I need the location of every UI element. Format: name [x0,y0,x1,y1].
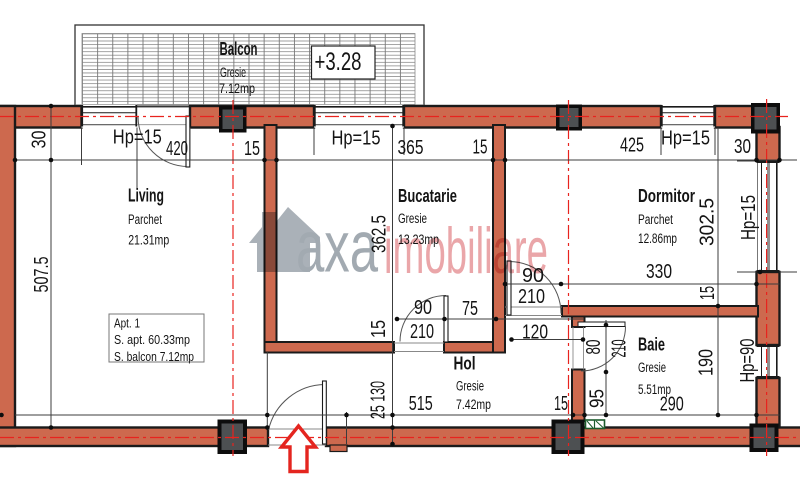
svg-text:21.31mp: 21.31mp [128,233,169,248]
svg-text:330: 330 [646,261,672,283]
svg-text:30: 30 [29,131,51,149]
svg-text:Living: Living [128,186,164,206]
svg-text:15: 15 [697,286,719,300]
svg-text:15: 15 [244,138,260,160]
svg-text:Hp=15: Hp=15 [332,128,381,150]
svg-text:25 130: 25 130 [368,381,390,419]
svg-text:Hp=15: Hp=15 [738,195,760,240]
svg-text:210: 210 [410,321,434,343]
svg-text:Parchet: Parchet [638,212,673,227]
svg-text:190: 190 [696,349,718,376]
svg-text:80: 80 [583,340,605,355]
svg-text:75: 75 [462,298,478,320]
svg-text:90: 90 [414,297,432,319]
svg-text:120: 120 [522,322,548,344]
svg-text:Hp=90: Hp=90 [737,339,759,383]
svg-text:210: 210 [518,286,545,308]
svg-text:Gresie: Gresie [456,379,484,394]
svg-text:210: 210 [609,340,631,358]
svg-text:12.86mp: 12.86mp [638,231,677,246]
svg-text:Dormitor: Dormitor [638,186,695,206]
svg-text:15: 15 [554,393,568,415]
svg-text:S. balcon 7.12mp: S. balcon 7.12mp [114,349,194,364]
svg-text:507.5: 507.5 [31,257,53,293]
svg-text:95: 95 [587,389,609,408]
svg-text:+3.28: +3.28 [315,48,362,76]
svg-text:13.23mp: 13.23mp [398,232,439,247]
svg-text:Baie: Baie [638,335,665,355]
svg-text:Apt. 1: Apt. 1 [114,316,140,331]
svg-text:7.12mp: 7.12mp [219,81,255,96]
svg-text:Gresie: Gresie [220,65,246,80]
svg-text:axa: axa [296,208,379,288]
svg-text:Parchet: Parchet [128,212,162,227]
svg-text:Balcon: Balcon [220,39,258,59]
svg-text:7.42mp: 7.42mp [456,397,491,412]
svg-text:290: 290 [660,394,684,416]
svg-text:Gresie: Gresie [638,360,666,375]
svg-text:15: 15 [368,320,390,338]
svg-text:Bucatarie: Bucatarie [398,186,457,206]
svg-text:362.5: 362.5 [369,215,391,253]
svg-text:365: 365 [398,137,424,159]
svg-text:Hp=15: Hp=15 [661,128,710,150]
svg-text:30: 30 [734,136,751,158]
svg-text:90: 90 [522,265,544,287]
svg-text:515: 515 [409,393,433,415]
svg-text:425: 425 [620,135,644,157]
svg-text:15: 15 [473,137,488,159]
svg-text:Gresie: Gresie [398,211,427,226]
svg-text:Hp=15: Hp=15 [113,127,162,149]
svg-text:420: 420 [166,138,188,160]
svg-text:S. apt. 60.33mp: S. apt. 60.33mp [114,332,190,347]
svg-text:Hol: Hol [454,354,476,374]
svg-text:302.5: 302.5 [697,198,719,246]
